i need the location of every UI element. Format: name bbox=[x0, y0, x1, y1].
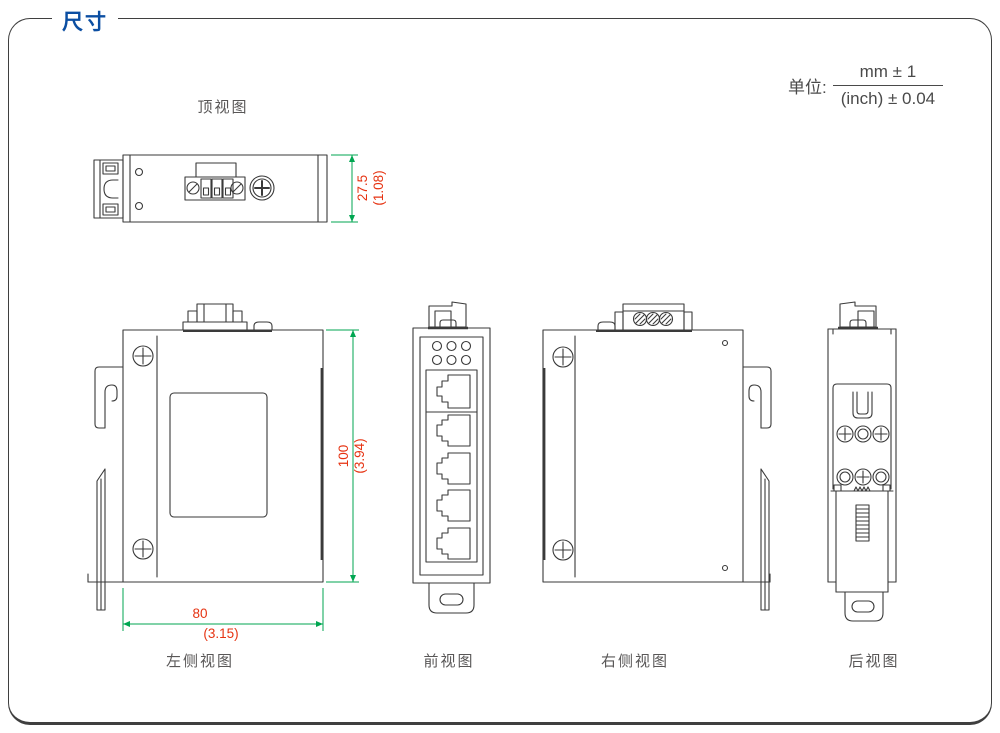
dim-depth-text: 27.5 (1.08) bbox=[355, 153, 387, 223]
dim-width-inch: (3.15) bbox=[193, 626, 249, 641]
rj45-ports bbox=[426, 370, 477, 562]
panel-screw-icon bbox=[133, 539, 153, 559]
panel-screw-icon bbox=[553, 347, 573, 367]
terminal-block-top-icon bbox=[185, 163, 245, 200]
screw-hole bbox=[723, 566, 728, 571]
case-left-outline bbox=[123, 330, 323, 582]
rear-screws-row2 bbox=[837, 469, 889, 485]
reset-button-icon bbox=[598, 322, 615, 330]
device-label-area bbox=[170, 393, 267, 517]
case-front-outline bbox=[413, 328, 490, 583]
din-clip-rear-icon bbox=[838, 302, 878, 328]
front-view-drawing bbox=[413, 302, 490, 613]
din-clip-top-icon bbox=[94, 160, 123, 218]
dim-height-mm: 100 bbox=[336, 411, 352, 501]
terminal-block-right-icon bbox=[615, 304, 692, 330]
reset-button-icon bbox=[254, 322, 272, 330]
dim-height-text: 100 (3.94) bbox=[336, 411, 368, 501]
rear-cutout bbox=[853, 392, 872, 418]
grounding-screw-icon bbox=[250, 176, 274, 200]
rear-view-drawing bbox=[828, 302, 896, 621]
screw-hole bbox=[723, 341, 728, 346]
case-right-outline bbox=[543, 330, 743, 582]
din-release-tab-icon bbox=[845, 592, 883, 621]
top-view-drawing bbox=[94, 155, 327, 222]
rear-screws-row1 bbox=[837, 426, 889, 442]
led-indicators bbox=[433, 342, 471, 365]
dim-depth-inch: (1.08) bbox=[371, 153, 387, 223]
bracket-spring-icon bbox=[856, 505, 869, 541]
panel-screw-icon bbox=[133, 346, 153, 366]
dim-height-inch: (3.94) bbox=[352, 411, 368, 501]
din-clip-left-icon bbox=[88, 367, 123, 610]
vent-hole bbox=[136, 169, 143, 176]
left-side-view-drawing bbox=[88, 304, 323, 610]
dim-depth-lines bbox=[331, 155, 358, 222]
dim-depth-mm: 27.5 bbox=[355, 153, 371, 223]
dimensions-page: 尺寸 单位: mm ± 1 (inch) ± 0.04 顶视图 左侧视图 前视图… bbox=[0, 0, 1000, 733]
terminal-block-side-icon bbox=[183, 304, 247, 330]
technical-drawing bbox=[0, 0, 1000, 733]
right-side-view-drawing bbox=[543, 304, 771, 610]
panel-screw-icon bbox=[553, 540, 573, 560]
din-bracket-rear bbox=[831, 485, 893, 592]
dim-width-mm: 80 bbox=[172, 606, 228, 621]
case-rear-outline bbox=[828, 329, 896, 582]
din-release-tab-icon bbox=[429, 583, 474, 613]
vent-hole bbox=[136, 203, 143, 210]
din-clip-right-icon bbox=[743, 367, 771, 610]
din-clip-front-icon bbox=[428, 302, 468, 328]
